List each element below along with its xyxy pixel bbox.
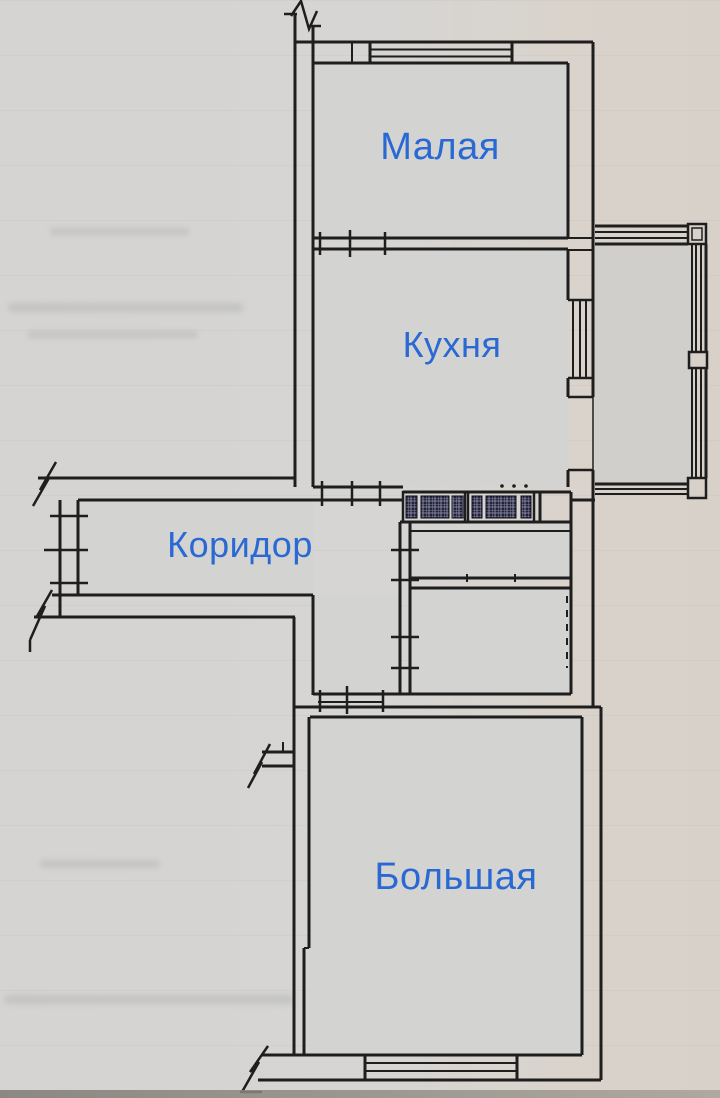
photo-bottom-edge xyxy=(0,1090,720,1098)
room-floor-hall xyxy=(313,595,400,694)
break-mark-corridor-bottom xyxy=(30,590,52,652)
window-bolshaya xyxy=(365,1055,517,1080)
window-malaya xyxy=(352,42,512,63)
break-mark-bottom xyxy=(240,1046,268,1092)
floor-plan-drawing xyxy=(0,0,720,1098)
ventilation-shafts xyxy=(400,484,571,522)
break-mark-corridor-top xyxy=(33,462,56,506)
window-balcony-kuhnya xyxy=(568,300,593,470)
room-label-koridor: Коридор xyxy=(167,527,313,563)
balcony-floor xyxy=(595,244,692,484)
room-label-malaya: Малая xyxy=(380,128,500,166)
floor-plan-photo: Малая Кухня Коридор Большая xyxy=(0,0,720,1098)
room-floor-wc xyxy=(410,524,571,578)
break-mark-top-wall xyxy=(284,1,321,29)
room-label-bolshaya: Большая xyxy=(375,858,538,896)
room-floor-kuhnya xyxy=(313,249,568,487)
room-floor-bathroom xyxy=(410,588,571,694)
room-label-kuhnya: Кухня xyxy=(403,327,502,363)
